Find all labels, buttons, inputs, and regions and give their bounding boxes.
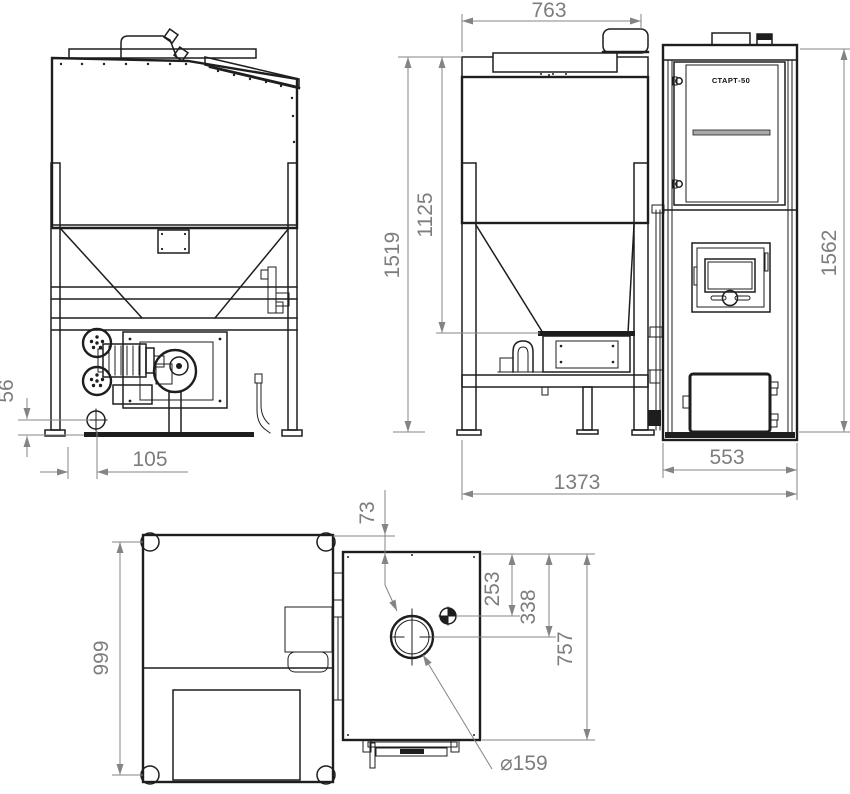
base-plate: [84, 432, 254, 437]
right-foot: [282, 430, 302, 436]
hopper-top-outline: [143, 535, 333, 782]
lower-door: [683, 374, 778, 432]
lid-knob: [603, 29, 648, 53]
dim-label-1373: 1373: [554, 471, 601, 494]
dimension-553: 553: [663, 443, 797, 478]
boiler-base: [665, 432, 795, 438]
corner-feet: [141, 533, 335, 784]
motor-flange: [146, 348, 154, 373]
fan-outlet-duct: [169, 392, 181, 433]
motor-ribs: [109, 346, 139, 375]
rivet-dots: [60, 63, 295, 143]
dim-label-999: 999: [90, 640, 113, 675]
dimension-56: 56: [0, 379, 90, 457]
dim-label-1519: 1519: [381, 232, 404, 279]
frame-rail-side: [462, 375, 648, 387]
dim-label-159: ⌀159: [500, 752, 548, 775]
middle-foot: [577, 430, 598, 434]
auger-arch-pipe: [498, 341, 545, 372]
hopper-top-rim: [69, 49, 256, 58]
chimney-pipe-top: [391, 609, 433, 665]
frame-rails: [52, 225, 297, 330]
funnel-slopes: [60, 228, 289, 318]
dim-label-553: 553: [709, 446, 744, 469]
fan-shaft-dot: [176, 363, 182, 369]
auger-chute-top: [285, 573, 343, 700]
hopper-opening: [173, 690, 300, 780]
right-side-bracket: [261, 267, 289, 313]
engineering-drawing: 56 105: [0, 0, 850, 794]
front-mechanism-top: [363, 740, 459, 768]
star-knob: [83, 329, 111, 357]
dimension-1562: 1562: [799, 49, 850, 432]
rim-dots: [540, 73, 567, 76]
dimension-105: 105: [40, 431, 188, 479]
feeder-box: [538, 331, 635, 372]
dim-label-253: 253: [481, 571, 504, 606]
rail-tab: [542, 387, 548, 395]
dim-label-56: 56: [0, 379, 18, 402]
front-foot: [457, 430, 481, 435]
top-view: [141, 533, 480, 784]
star-knob: [83, 367, 111, 395]
bolt-marker: [439, 607, 457, 625]
junction-box: [113, 385, 152, 404]
lid-handle-cover: [121, 36, 177, 58]
boiler-front-view: СТАРТ-50: [663, 33, 797, 440]
dimension-763: 763: [462, 0, 641, 52]
rear-leg: [634, 163, 648, 430]
funnel-slopes-side: [476, 225, 634, 333]
boiler-model-label: СТАРТ-50: [712, 76, 750, 85]
control-panel: [692, 243, 770, 312]
lever-handle: [255, 374, 270, 433]
door-vent-slot: [693, 130, 770, 135]
engineering-drawing-page: 56 105: [0, 0, 850, 794]
side-view-hopper: [457, 29, 664, 435]
dim-label-763: 763: [531, 0, 566, 22]
dimension-253: 253: [456, 554, 520, 616]
middle-leg: [583, 387, 592, 430]
front-leg: [462, 163, 476, 430]
dim-label-757: 757: [554, 631, 577, 666]
dimension-1125: 1125: [414, 57, 540, 333]
transfer-tube: [648, 205, 664, 430]
dim-label-73: 73: [356, 501, 379, 524]
dimension-1519: 1519: [381, 57, 462, 432]
hopper-body-outline: [52, 58, 297, 228]
rear-foot: [632, 430, 654, 435]
display-screen: [708, 262, 752, 289]
dim-label-1562: 1562: [818, 230, 841, 277]
hopper-side-body: [462, 77, 648, 223]
top-rim-plate: [493, 53, 617, 72]
chimney-stub: [712, 33, 750, 45]
dimension-999: 999: [90, 542, 143, 775]
dim-label-105: 105: [132, 448, 167, 471]
pipe-stub-cap: [757, 34, 772, 40]
dimension-chimney-diameter: ⌀159: [423, 655, 548, 775]
dim-label-1125: 1125: [414, 192, 437, 237]
funnel-access-plate: [158, 230, 189, 253]
dim-label-338: 338: [517, 589, 540, 624]
front-view-hopper-burner: [45, 29, 302, 437]
